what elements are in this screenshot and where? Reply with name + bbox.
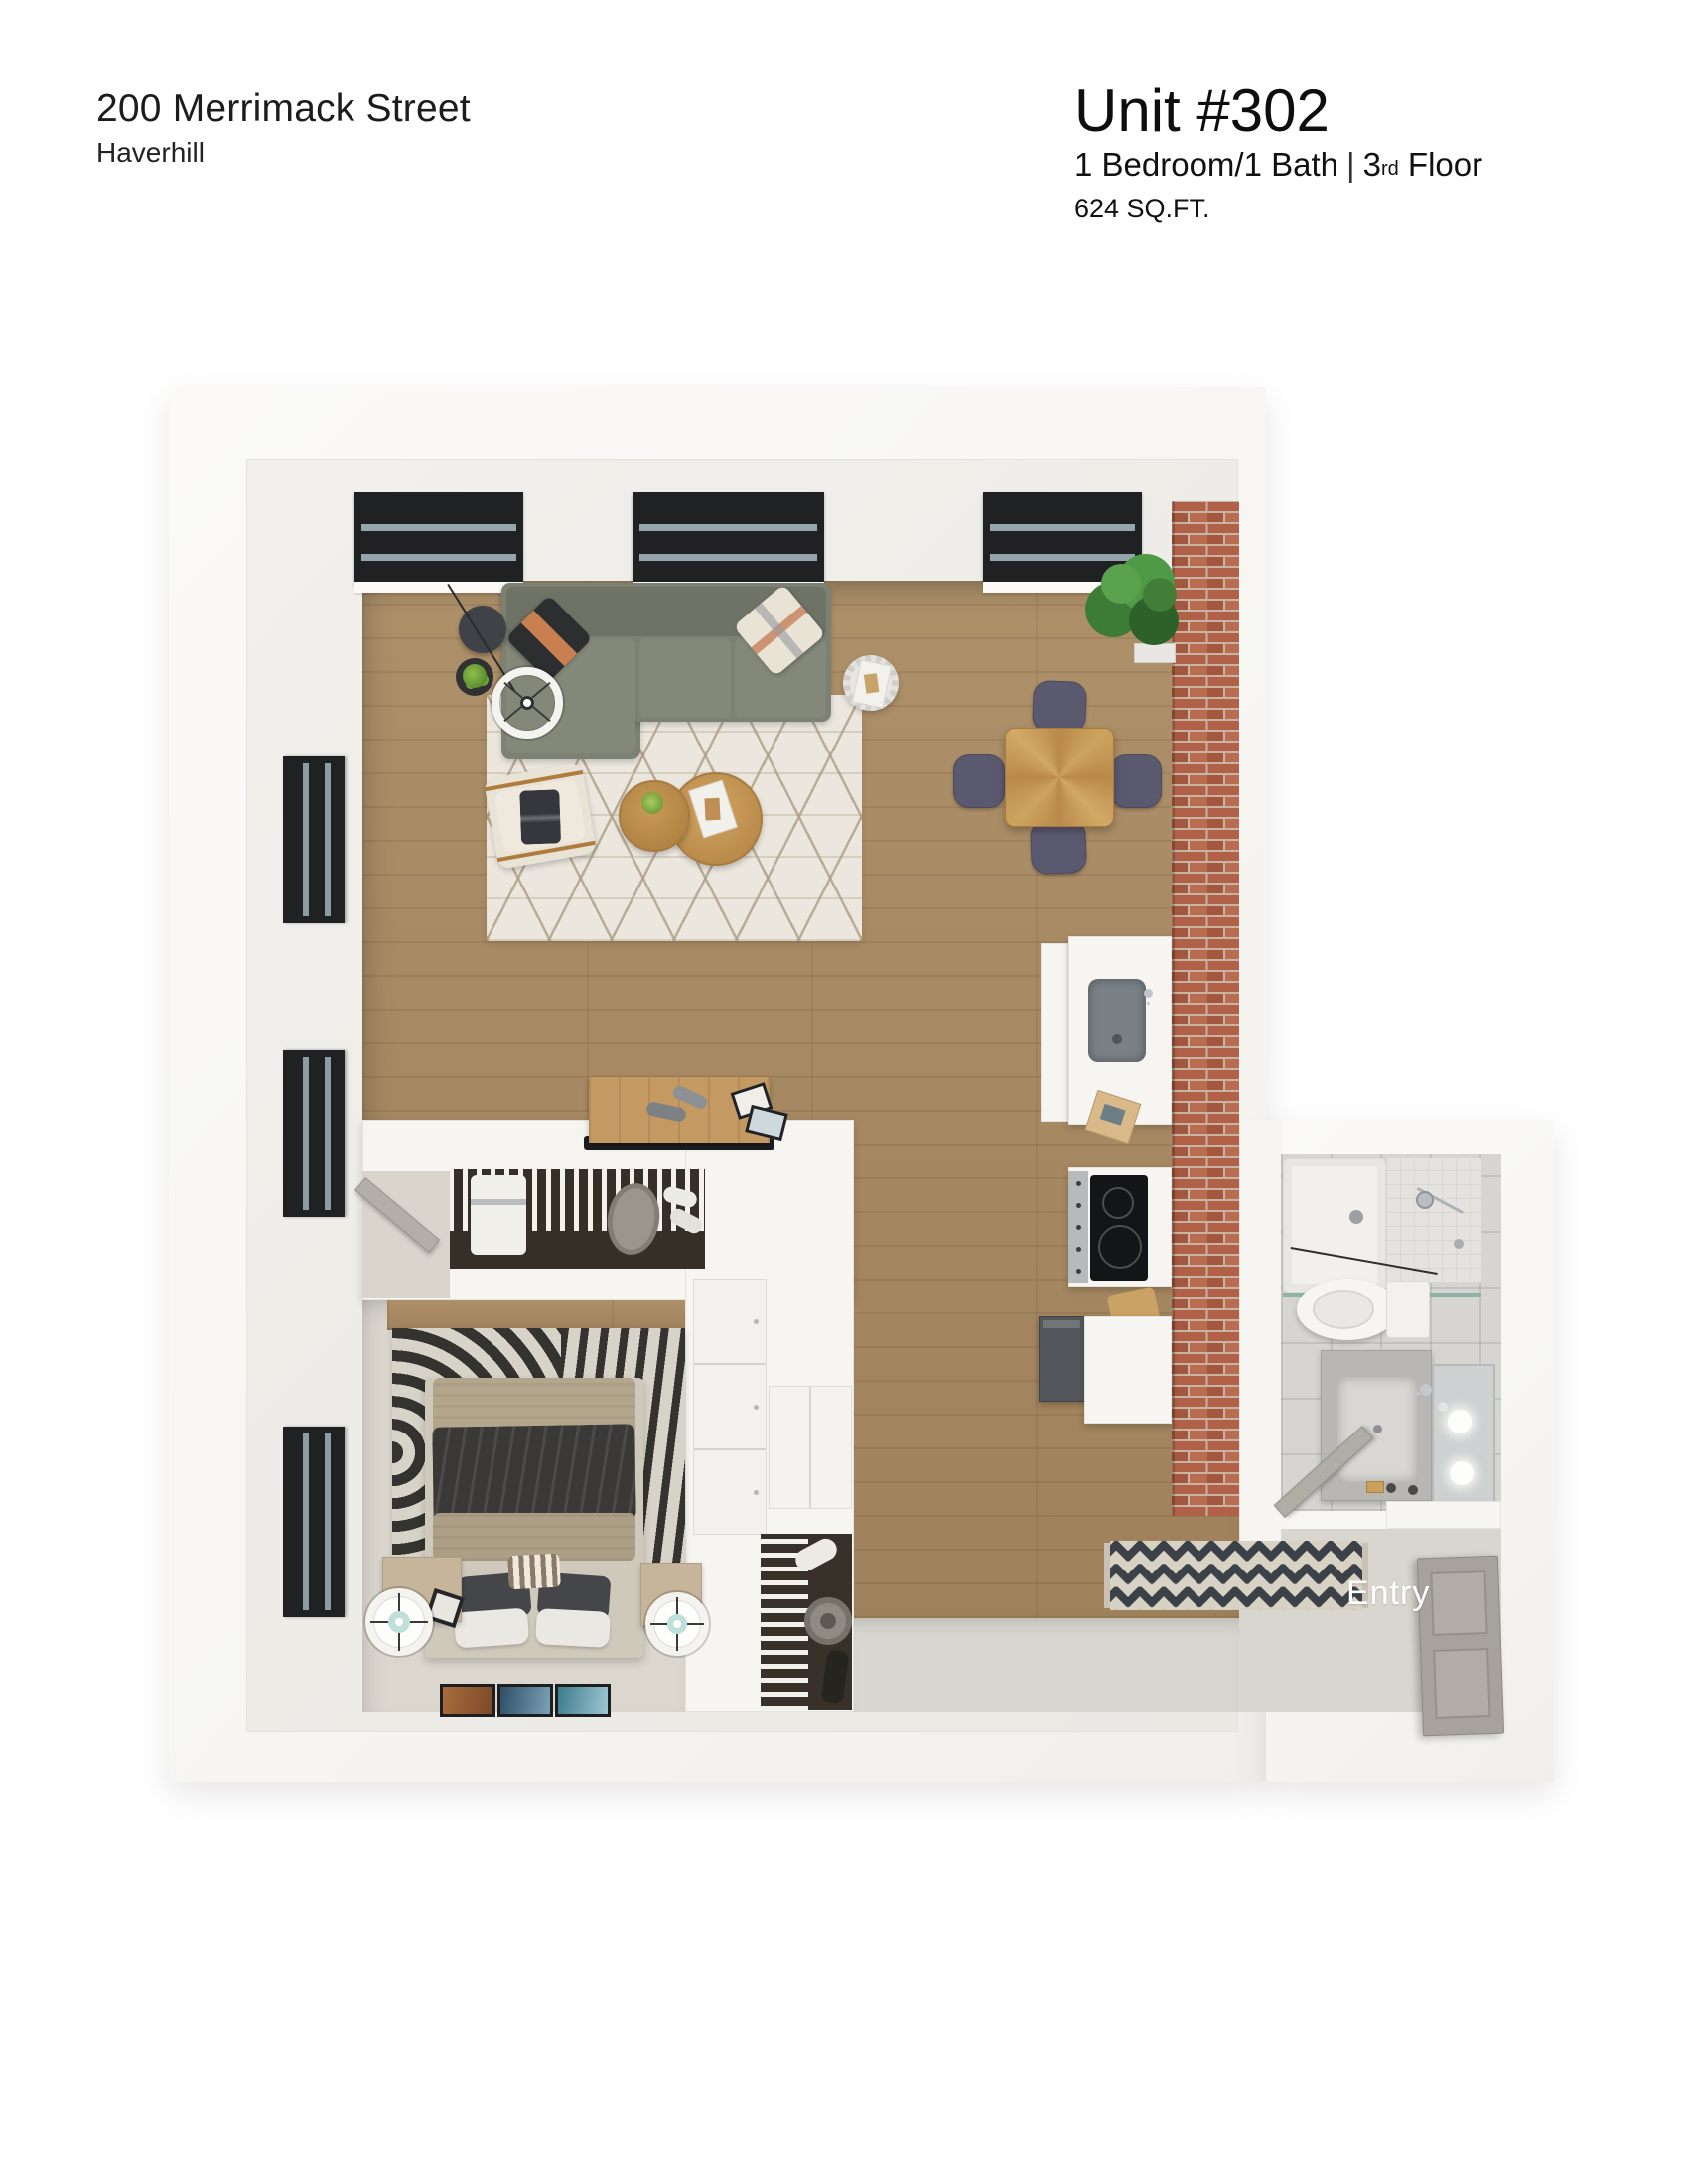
bedside-lamp-right	[645, 1592, 709, 1656]
dining-chair-south	[1030, 819, 1087, 875]
floor-lamp-ring	[492, 667, 563, 739]
unit-header: Unit #302 1 Bedroom/1 Bath|3rd Floor 624…	[1074, 79, 1482, 224]
dining-chair-west	[953, 754, 1005, 808]
wall-sconce	[1450, 1461, 1474, 1485]
basin-drain	[1373, 1425, 1382, 1433]
unit-title: Unit #302	[1074, 79, 1482, 142]
vanity-basin	[1337, 1377, 1417, 1482]
lamp-glow	[667, 1614, 687, 1634]
unit-specs: 1 Bedroom/1 Bath|3rd Floor	[1074, 146, 1482, 184]
drawer-handle	[754, 1319, 759, 1324]
window-bedroom	[283, 1427, 345, 1617]
toilet-bowl	[1297, 1279, 1398, 1340]
window-glass	[325, 1057, 331, 1210]
sun-hat	[804, 1597, 852, 1645]
vanity-counter	[1321, 1350, 1432, 1501]
bedroom-dresser	[693, 1279, 767, 1535]
toiletry-bottle	[1386, 1483, 1396, 1493]
sofa-seat-cushion	[639, 638, 731, 718]
dining-table	[1005, 728, 1114, 827]
window-left-1	[283, 756, 345, 923]
burner	[1102, 1187, 1134, 1219]
brick-accent-wall	[1172, 501, 1239, 1516]
entry-doormat	[1104, 1541, 1368, 1610]
lamp-bulb	[395, 1618, 403, 1626]
bed-pillow-white	[535, 1608, 611, 1648]
toilet-seat	[1313, 1290, 1374, 1329]
window-top-1	[354, 492, 523, 582]
gold-tray	[1366, 1481, 1384, 1493]
vanity-faucet	[1420, 1384, 1432, 1396]
window-glass	[639, 524, 817, 531]
hamper-band	[471, 1199, 526, 1205]
storage-hamper	[471, 1175, 526, 1255]
bedroom-wood-accent	[387, 1300, 685, 1330]
stove-knob	[1076, 1181, 1081, 1186]
window-glass	[361, 554, 516, 561]
vanity-mirror	[1432, 1364, 1495, 1503]
boots	[820, 1650, 849, 1705]
kitchen-sink	[1088, 979, 1146, 1062]
chair-pillow	[519, 789, 561, 844]
plant-leaves	[1101, 564, 1141, 604]
window-glass	[325, 763, 331, 916]
burner	[1098, 1225, 1142, 1269]
kitchen-faucet	[1144, 989, 1153, 998]
bed-pillow-white	[454, 1607, 529, 1648]
unit-area: 624 SQ.FT.	[1074, 194, 1482, 224]
lamp-bulb	[673, 1620, 681, 1628]
stove-control-strip	[1068, 1171, 1088, 1283]
toaster-screen	[1100, 1104, 1126, 1126]
remote-control	[645, 1101, 687, 1123]
book-art	[864, 673, 880, 694]
hall-wardrobe	[769, 1386, 852, 1509]
entry-label: Entry	[1346, 1574, 1430, 1613]
drawer-line	[694, 1363, 766, 1365]
small-plant	[463, 664, 487, 688]
annex-west-wall	[1239, 1120, 1282, 1542]
bed-pillow-striped	[507, 1554, 561, 1590]
dining-chair-north	[1032, 680, 1087, 734]
shower-pan	[1283, 1158, 1386, 1293]
sink-drain	[1112, 1034, 1122, 1044]
framed-art	[555, 1684, 611, 1717]
window-sill	[354, 582, 523, 593]
book-art	[704, 798, 720, 821]
drawer-line	[694, 1448, 766, 1450]
window-left-2	[283, 1050, 345, 1217]
floorplan-sheet: 200 Merrimack Street Haverhill Unit #302…	[0, 0, 1688, 2184]
shower-head	[1416, 1191, 1434, 1209]
wardrobe-door-split	[809, 1387, 811, 1508]
window-glass	[303, 1057, 309, 1210]
bed-throw-dark	[432, 1424, 636, 1523]
kitchen-lower-cabinet	[1084, 1316, 1172, 1424]
hat-crown	[820, 1613, 836, 1629]
framed-art	[497, 1684, 553, 1717]
lamp-glow	[388, 1611, 410, 1633]
pillow-copper-stripe	[521, 611, 578, 667]
floor-ordinal: rd	[1381, 158, 1399, 180]
fridge-gloss	[1043, 1320, 1080, 1328]
window-top-2	[633, 492, 824, 582]
hall-closet-interior	[761, 1534, 852, 1710]
unit-bed-bath: 1 Bedroom/1 Bath	[1074, 146, 1338, 183]
fridge	[1039, 1316, 1086, 1402]
hall-entry-floor	[854, 1618, 1239, 1712]
shower-tile-wall	[1386, 1158, 1481, 1283]
toiletry-bottle	[1408, 1485, 1418, 1495]
property-header: 200 Merrimack Street Haverhill	[96, 87, 471, 169]
door-panel	[1433, 1648, 1490, 1719]
cooktop	[1090, 1175, 1148, 1281]
wall-sconce	[1448, 1410, 1472, 1433]
toilet-tank	[1386, 1281, 1430, 1338]
window-glass	[325, 1433, 331, 1610]
door-panel	[1430, 1570, 1487, 1636]
window-glass	[361, 524, 516, 531]
bed-blanket-foot	[433, 1513, 635, 1561]
shower-drain	[1349, 1210, 1363, 1224]
dining-chair-east	[1110, 754, 1162, 808]
bathroom-south-wall	[1386, 1501, 1501, 1529]
property-address: 200 Merrimack Street	[96, 87, 471, 131]
accent-chair	[484, 762, 597, 870]
bedside-lamp-left	[365, 1588, 433, 1656]
spec-separator: |	[1338, 146, 1363, 183]
plant-leaves	[1143, 578, 1177, 612]
kitchen-cabinet-wing	[1041, 943, 1068, 1122]
media-console	[589, 1077, 770, 1143]
mirror-faucet-reflection	[1438, 1402, 1448, 1412]
fiddle-leaf-plant	[1077, 552, 1181, 655]
framed-art	[440, 1684, 495, 1717]
succulent-plant	[641, 792, 663, 814]
lamp-center	[520, 696, 534, 710]
coffee-table-small	[619, 780, 690, 852]
floor-word: Floor	[1408, 146, 1482, 183]
window-glass	[990, 524, 1135, 531]
property-city: Haverhill	[96, 137, 471, 169]
window-glass	[639, 554, 817, 561]
closet-interior	[449, 1169, 705, 1269]
shower-valve	[1454, 1239, 1464, 1249]
window-glass	[303, 1433, 309, 1610]
window-glass	[303, 763, 309, 916]
floor-number: 3	[1363, 146, 1381, 183]
